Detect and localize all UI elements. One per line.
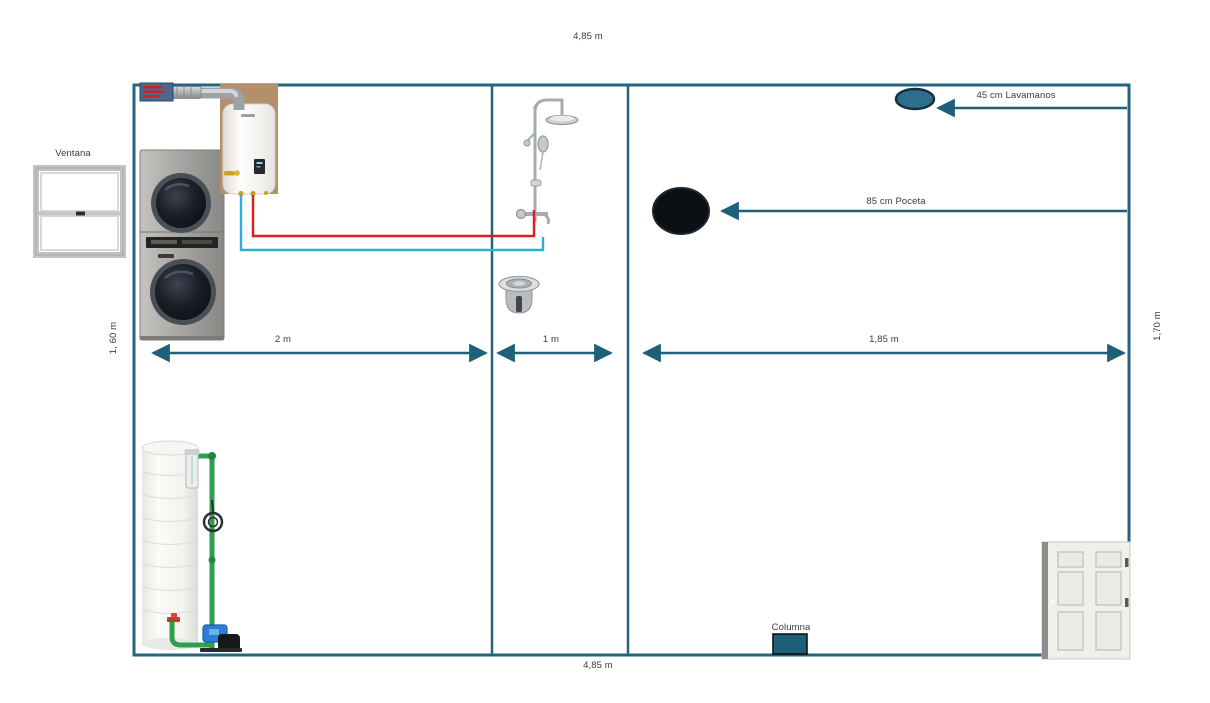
- door-hinge: [1125, 558, 1129, 567]
- room-walls: [134, 85, 1129, 655]
- top-width-label: 4,85 m: [573, 32, 603, 42]
- cold-water-pipe: [241, 195, 543, 250]
- toilet-offset-label: 85 cm Poceta: [866, 197, 925, 207]
- floor-plan-drawing: [0, 0, 1210, 703]
- left-height-label: 1, 60 m: [109, 322, 119, 354]
- door-knob: [1051, 599, 1055, 603]
- window: [36, 168, 123, 255]
- washer-dispenser-handle: [158, 254, 174, 258]
- water-heater: [220, 84, 278, 196]
- hand-shower: [538, 136, 548, 152]
- sink-offset-label: 45 cm Lavamanos: [976, 91, 1055, 101]
- bath-width-label: 1,85 m: [869, 335, 899, 345]
- water-tank: [142, 441, 242, 652]
- bottom-width-label: 4,85 m: [583, 661, 613, 671]
- floor-plan: 4,85 m 4,85 m 1, 60 m 1,70 m 2 m 1 m 1,8…: [0, 0, 1210, 703]
- door: [1042, 542, 1130, 659]
- column-label: Columna: [772, 623, 811, 633]
- window-label: Ventana: [55, 149, 91, 159]
- washer-dryer-stack: [140, 150, 224, 340]
- right-height-label: 1,70 m: [1153, 311, 1163, 341]
- door-hinge: [1125, 598, 1129, 607]
- heater-logo-mark: [241, 114, 255, 117]
- floor-drain: [499, 277, 539, 314]
- column: [773, 634, 807, 654]
- window-latch: [76, 212, 85, 216]
- shower-valve-handle: [517, 210, 526, 219]
- heater-valve: [224, 171, 235, 176]
- vent-grille: [140, 83, 173, 101]
- laundry-width-label: 2 m: [275, 335, 291, 345]
- toilet: [653, 188, 709, 234]
- shower-width-label: 1 m: [543, 335, 559, 345]
- sink: [896, 89, 934, 109]
- door-edge: [1042, 542, 1048, 659]
- shower-column: [517, 100, 579, 224]
